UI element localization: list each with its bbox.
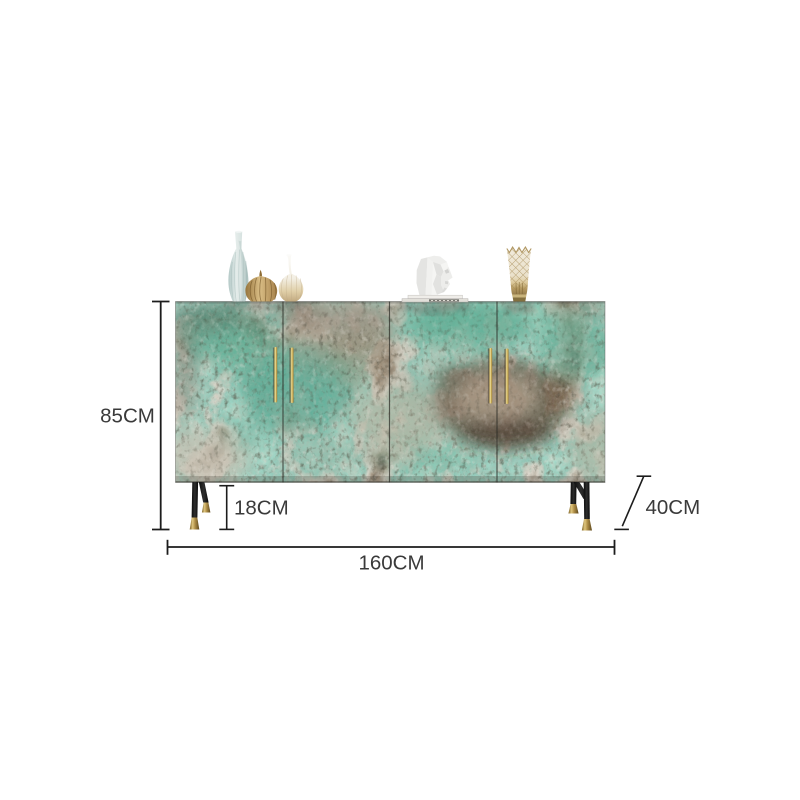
svg-text:18CM: 18CM — [234, 497, 289, 520]
svg-text:85CM: 85CM — [100, 405, 155, 428]
svg-text:160CM: 160CM — [358, 552, 424, 575]
svg-text:40CM: 40CM — [646, 496, 701, 519]
